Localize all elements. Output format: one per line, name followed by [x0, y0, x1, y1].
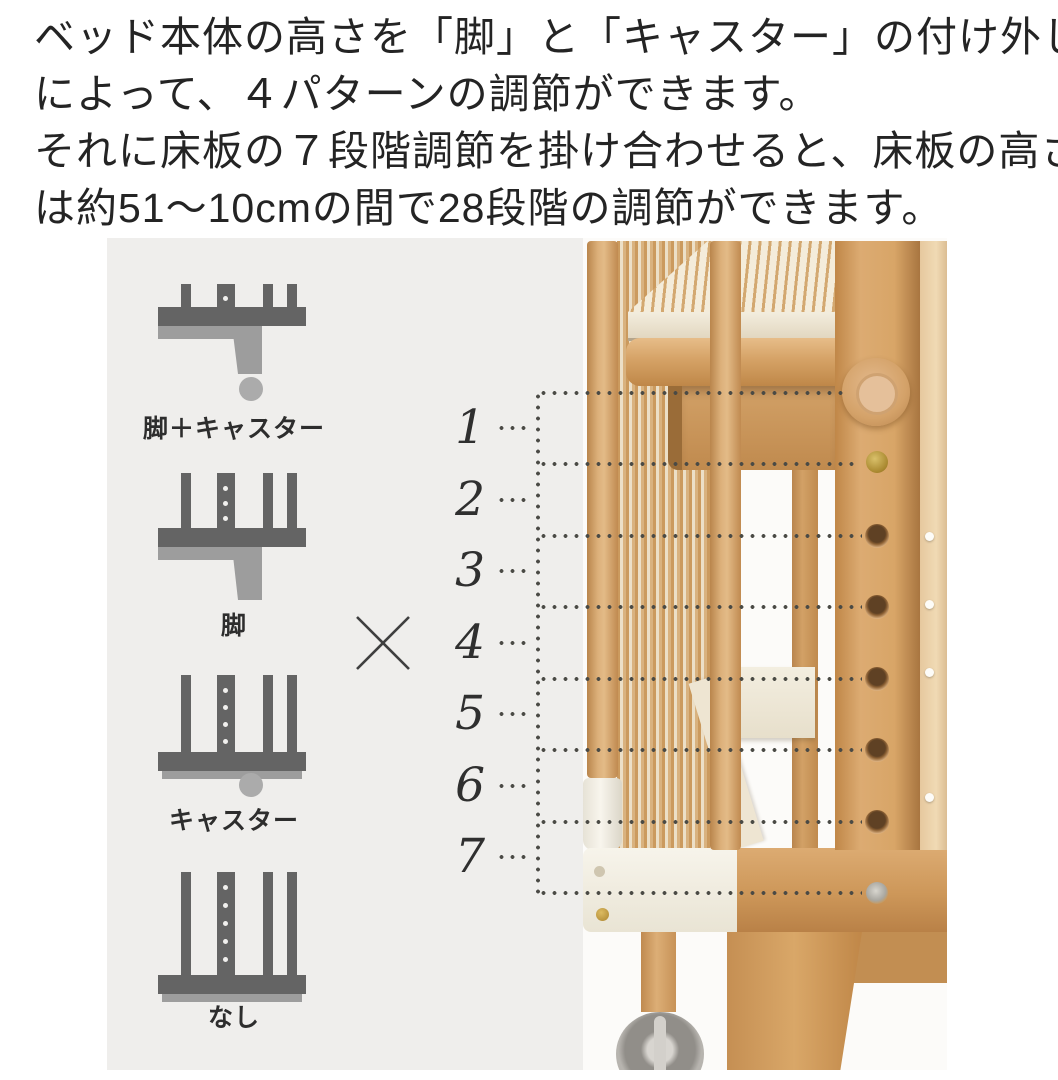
post-hole-dot: [223, 903, 228, 908]
post-hole-dot: [223, 957, 228, 962]
level-line-1: [538, 391, 845, 395]
crib-front-post-left: [587, 241, 618, 778]
bed-base-rail-shape: [158, 975, 306, 994]
base-shadow-shape: [158, 326, 235, 339]
adjustment-hole: [865, 810, 889, 834]
crib-under-frame: [668, 386, 836, 470]
bed-slat-shape: [287, 872, 297, 975]
adjustment-hole: [865, 524, 889, 548]
bed-slat-shape: [181, 675, 191, 752]
level-number-7: 7: [430, 830, 485, 884]
level-line-8: [538, 891, 862, 895]
post-hole-dot: [223, 705, 228, 710]
product-explainer-page: ベッド本体の高さを「脚」と「キャスター」の付け外し によって、４パターンの調節が…: [0, 0, 1058, 1080]
brass-screw: [866, 451, 888, 473]
post-hole-dot: [223, 486, 228, 491]
leader-dots: [496, 426, 532, 430]
post-hole-dot: [223, 516, 228, 521]
level-number-1: 1: [430, 401, 485, 455]
level-line-4: [538, 605, 862, 609]
intro-text-line-3: それに床板の７段階調節を掛け合わせると、床板の高さ: [34, 126, 1058, 176]
caster-wheel: [616, 1012, 704, 1070]
strip-hole: [925, 600, 934, 609]
post-hole-dot: [223, 688, 228, 693]
bed-base-rail-shape: [158, 307, 306, 326]
crib-side-strip: [920, 241, 947, 850]
pattern-label-casters: キャスター: [109, 801, 359, 837]
metal-screw: [866, 882, 888, 904]
pattern-icon-casters: [158, 675, 306, 800]
level-line-3: [538, 534, 862, 538]
leader-dots: [496, 712, 532, 716]
bed-slat-shape: [263, 872, 273, 975]
adjustment-knob: [842, 358, 910, 426]
level-number-4: 4: [430, 616, 485, 670]
pattern-label-legs: 脚: [109, 606, 359, 642]
bed-slat-shape: [287, 675, 297, 752]
crib-inner-post: [792, 470, 818, 850]
post-hole-dot: [223, 296, 228, 301]
bed-slat-shape: [181, 872, 191, 975]
adjustment-hole: [865, 667, 889, 691]
bed-slat-shape: [263, 675, 273, 752]
adjustment-hole: [865, 595, 889, 619]
pattern-icon-none: [158, 872, 306, 1002]
knob-center: [856, 373, 898, 415]
caster-wheel-hub: [654, 1016, 666, 1070]
multiply-icon: [352, 612, 414, 674]
crib-photo: [583, 238, 947, 1070]
bed-slat-shape: [287, 473, 297, 528]
post-hole-dot: [223, 739, 228, 744]
bed-slat-shape: [181, 284, 191, 307]
leader-dots: [496, 784, 532, 788]
leader-dots: [496, 641, 532, 645]
caster-ball-shape: [239, 773, 263, 797]
bed-base-rail-shape: [158, 528, 306, 547]
level-line-2: [538, 462, 858, 466]
post-hole-dot: [223, 885, 228, 890]
crib-front-post-right: [710, 241, 741, 850]
leader-dots: [496, 855, 532, 859]
caster-leg: [641, 932, 676, 1012]
level-number-5: 5: [430, 687, 485, 741]
crib-leg-white-sleeve: [583, 778, 622, 850]
level-number-2: 2: [430, 473, 485, 527]
strip-hole: [925, 793, 934, 802]
post-hole-dot: [223, 939, 228, 944]
base-shadow-shape: [162, 771, 302, 779]
frame-brass-hole: [596, 908, 609, 921]
intro-text-line-4: は約51～10cmの間で28段階の調節ができます。: [34, 183, 943, 233]
leg-shape: [232, 547, 262, 600]
crib-lower-white-frame: [583, 848, 737, 932]
bed-base-rail-shape: [158, 752, 306, 771]
caster-ball-shape: [239, 377, 263, 401]
post-hole-dot: [223, 921, 228, 926]
leader-dots: [496, 569, 532, 573]
intro-text-line-1: ベッド本体の高さを「脚」と「キャスター」の付け外し: [34, 12, 1058, 62]
level-line-7: [538, 820, 862, 824]
level-line-5: [538, 677, 862, 681]
pattern-icon-legs-and-casters: [158, 284, 306, 404]
bed-slat-shape: [263, 473, 273, 528]
strip-hole: [925, 668, 934, 677]
post-hole-dot: [223, 501, 228, 506]
leg-shape: [232, 326, 262, 374]
crib-lower-rail: [737, 848, 947, 932]
level-number-3: 3: [430, 544, 485, 598]
intro-text-line-2: によって、４パターンの調節ができます。: [34, 69, 821, 119]
level-line-6: [538, 748, 862, 752]
adjustment-hole: [865, 738, 889, 762]
pattern-label-none: なし: [109, 998, 359, 1034]
pattern-label-legs-and-casters: 脚＋キャスター: [109, 409, 359, 445]
bed-slat-shape: [263, 284, 273, 307]
crib-rail-side: [847, 932, 947, 983]
crib-rear-leg: [727, 932, 862, 1070]
strip-hole: [925, 532, 934, 541]
bed-slat-shape: [287, 284, 297, 307]
base-shadow-shape: [158, 547, 235, 560]
leader-dots: [496, 498, 532, 502]
pattern-icon-legs: [158, 473, 306, 603]
level-number-6: 6: [430, 759, 485, 813]
bed-slat-shape: [181, 473, 191, 528]
frame-hole: [594, 866, 605, 877]
post-hole-dot: [223, 722, 228, 727]
